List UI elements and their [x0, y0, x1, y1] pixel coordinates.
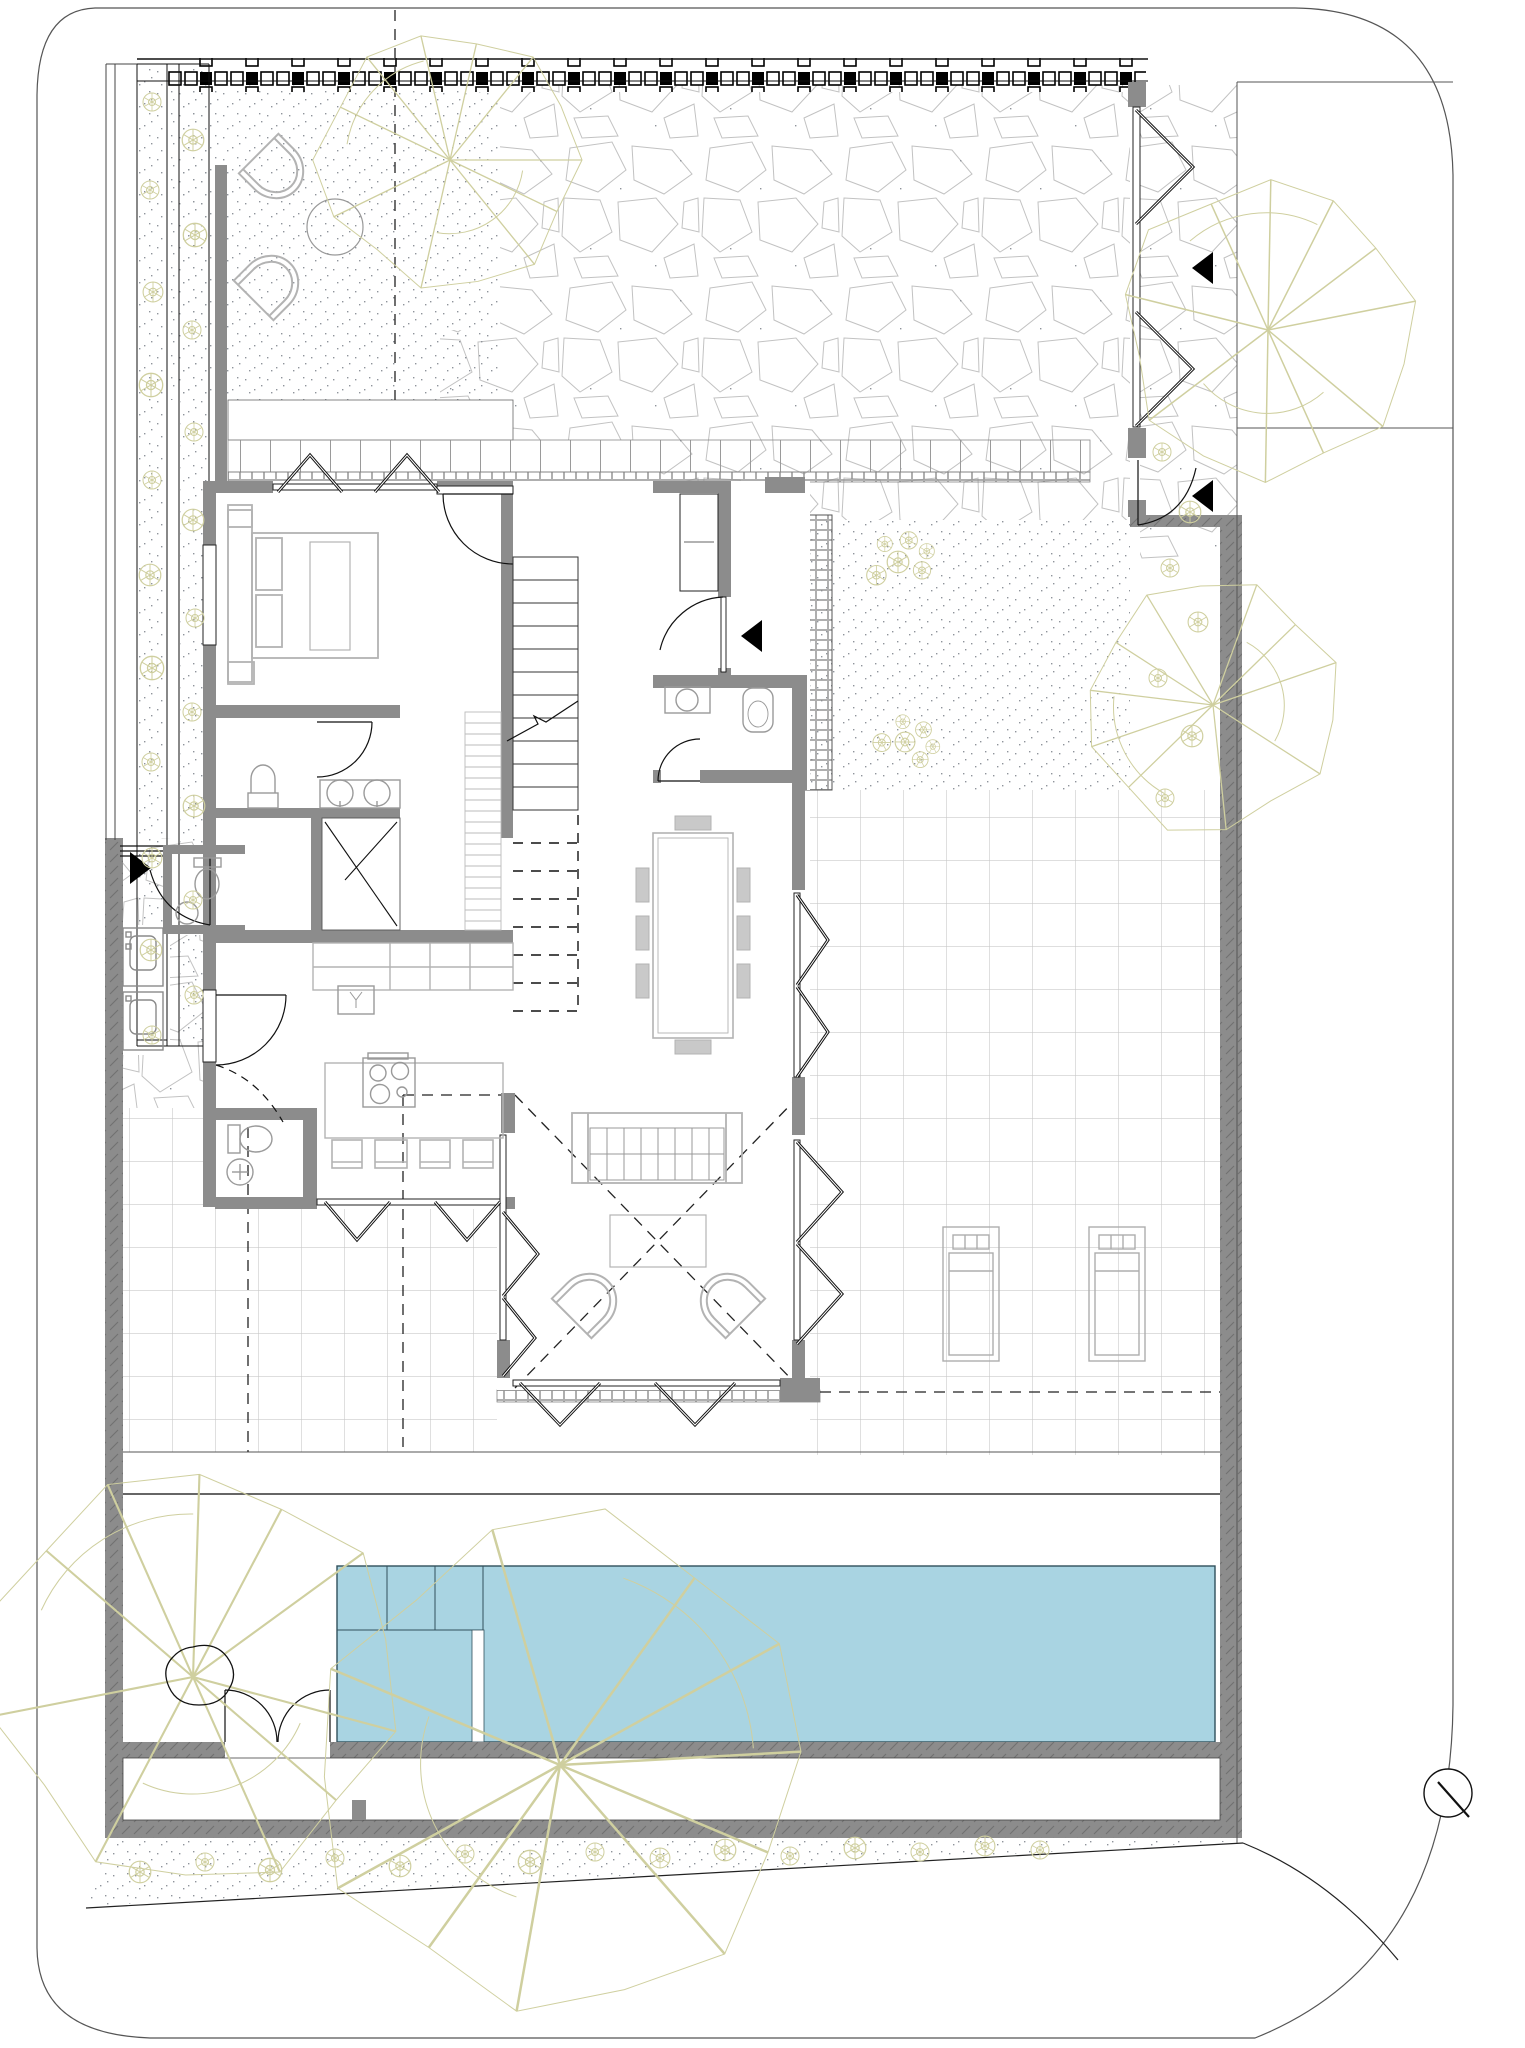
- window-sill-strip-south: [497, 1390, 820, 1402]
- window-sill-strip-north: [228, 472, 1090, 482]
- wall-hall-east-1: [718, 492, 731, 597]
- wall-bath-mid: [215, 808, 400, 818]
- corner-southeast: [780, 1378, 820, 1402]
- wall-kitchen-south: [215, 1197, 317, 1209]
- gate-pier-1: [1128, 82, 1146, 107]
- wall-north-1: [203, 481, 273, 493]
- wall-powder-top: [653, 675, 807, 688]
- wall-bath-bottom: [215, 930, 513, 943]
- west-boundary-wall: [105, 838, 123, 1838]
- wall-wc-east: [303, 1108, 317, 1209]
- east-boundary-wall: [1220, 515, 1242, 1838]
- wall-sidewc-west: [163, 845, 172, 934]
- wall-sidewc-bottom: [163, 925, 245, 934]
- stair-flight-upper: [513, 557, 578, 810]
- trough-pier: [352, 1800, 366, 1820]
- pool-ledge: [472, 1630, 484, 1742]
- planting-strip-a-gravel: [139, 66, 166, 1041]
- wall-sidewc-top: [163, 845, 245, 854]
- garden-west-wall: [215, 165, 227, 493]
- timber-deck-band: [228, 440, 1090, 472]
- hall-west-door-gap: [203, 990, 216, 1062]
- wall-dining-east: [792, 790, 805, 890]
- east-patio-tiles: [810, 790, 1237, 1455]
- wall-north-3: [653, 481, 731, 493]
- wall-powder-east: [792, 675, 807, 790]
- wall-powder-bottom-2: [700, 770, 807, 783]
- south-wall-a2: [330, 1742, 1242, 1758]
- east-link-wall: [1130, 515, 1242, 527]
- wall-shower-west: [311, 818, 322, 930]
- pier-northeast: [765, 477, 805, 493]
- floor-plan-svg: [0, 0, 1525, 2048]
- south-wall-a1: [105, 1742, 225, 1758]
- pool-water: [337, 1566, 1215, 1742]
- north-arrow: [1424, 1769, 1472, 1817]
- gate-pier-2: [1128, 428, 1146, 458]
- bedroom-west-window: [203, 545, 216, 645]
- gate-pier-3: [1128, 500, 1146, 517]
- dining-set: [636, 816, 750, 1054]
- wall-wc-top: [215, 1108, 317, 1120]
- north-patio-band: [228, 400, 513, 440]
- garden-gate-wall: [1133, 107, 1140, 427]
- wall-bath-top: [215, 705, 400, 718]
- floor-plan-canvas: [0, 0, 1525, 2048]
- pier-east-mid: [792, 1077, 805, 1135]
- top-fence-posts: [168, 58, 1146, 92]
- entry-threshold: [437, 486, 513, 494]
- south-wall-b: [105, 1820, 1242, 1838]
- dining-table: [653, 833, 733, 1038]
- wall-stairs: [501, 493, 513, 838]
